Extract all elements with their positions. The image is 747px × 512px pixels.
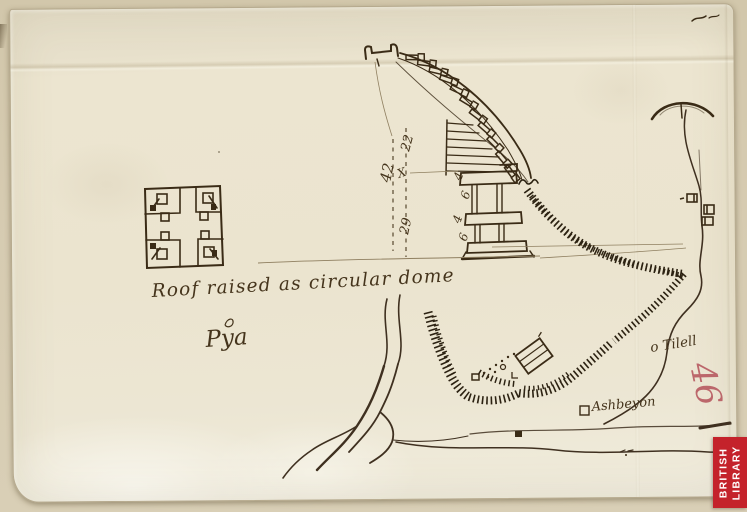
handwritten-annotations: Roof raised as circular dome Pya o Tilel…: [150, 265, 698, 415]
umbrella-tree-mark: [652, 15, 719, 119]
column-mark-4: 6: [456, 231, 472, 243]
column-mark-3: 4: [449, 213, 465, 226]
measure-29: 29: [397, 217, 415, 237]
stamp-line-2: LIBRARY: [730, 445, 743, 500]
village-label-text: Ashbeyon: [590, 394, 656, 415]
support-column: [460, 164, 534, 259]
scanned-manuscript-page: Roof raised as circular dome Pya o Tilel…: [0, 0, 747, 512]
stamp-text: BRITISH LIBRARY: [713, 437, 747, 508]
measurement-numerals: 42 22 29 X 4 6 4 6: [376, 133, 473, 243]
measure-42: 42: [376, 161, 398, 184]
column-mark-2: 6: [458, 189, 474, 201]
riverside-buildings: [680, 194, 714, 225]
folio-number: 46: [681, 358, 729, 410]
village-square-symbol: [580, 406, 589, 415]
stamp-line-1: BRITISH: [717, 447, 730, 497]
hill-hatching: [428, 180, 684, 401]
fort-plan-drawing: [145, 151, 223, 268]
pya-label-text: Pya: [204, 324, 249, 353]
ink-drawing-layer: Roof raised as circular dome Pya o Tilel…: [0, 0, 747, 512]
tilell-label-text: o Tilell: [649, 333, 698, 356]
measure-22: 22: [398, 133, 417, 154]
roof-note-text: Roof raised as circular dome: [150, 265, 455, 302]
british-library-stamp: BRITISH LIBRARY: [713, 437, 747, 508]
staircase-section-drawing: [365, 44, 534, 259]
